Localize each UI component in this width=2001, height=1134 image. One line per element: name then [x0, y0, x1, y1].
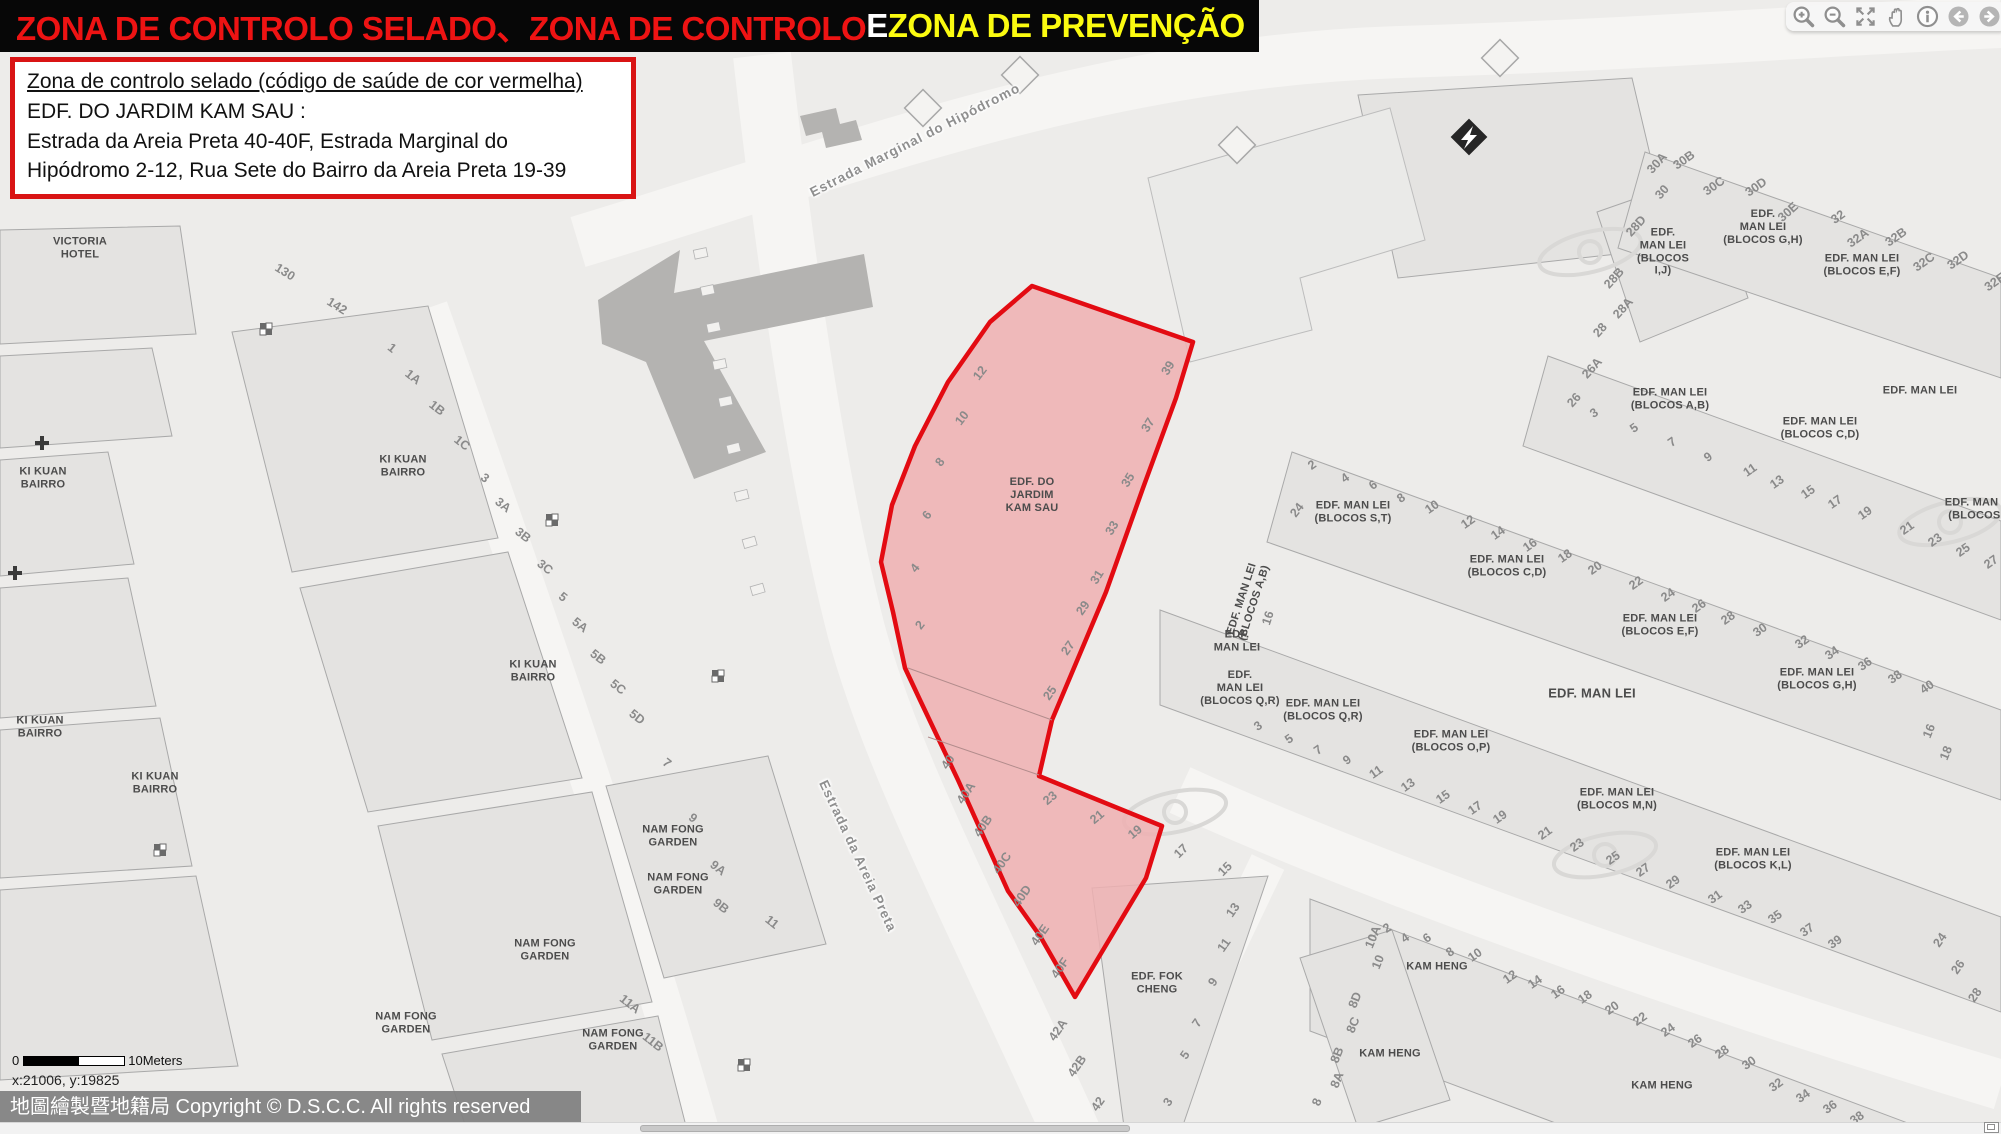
- info-line-1: Zona de controlo selado (código de saúde…: [27, 67, 619, 97]
- cursor-coordinates: x:21006, y:19825: [12, 1072, 119, 1088]
- scrollbar-corner-icon[interactable]: [1984, 1122, 1999, 1133]
- title-bar: ZONA DE CONTROLO SELADO、ZONA DE CONTROLO…: [0, 0, 1259, 52]
- info-line-4: Hipódromo 2-12, Rua Sete do Bairro da Ar…: [27, 156, 619, 186]
- scrollbar-thumb[interactable]: [640, 1125, 1130, 1132]
- info-line-3: Estrada da Areia Preta 40-40F, Estrada M…: [27, 127, 619, 157]
- copyright-bar: 地圖繪製暨地籍局 Copyright © D.S.C.C. All rights…: [0, 1091, 581, 1124]
- title-segment-1: ZONA DE CONTROLO SELADO、ZONA DE CONTROLO: [16, 2, 866, 50]
- next-extent-icon[interactable]: [1977, 4, 2001, 29]
- map-viewer-screen: VICTORIA HOTELKI KUAN BAIRROKI KUAN BAIR…: [0, 0, 2001, 1134]
- full-extent-icon[interactable]: [1853, 4, 1878, 29]
- previous-extent-icon[interactable]: [1946, 4, 1971, 29]
- zoom-in-icon[interactable]: [1791, 4, 1816, 29]
- scale-bar-graphic: [23, 1056, 125, 1066]
- zone-info-box: Zona de controlo selado (código de saúde…: [10, 57, 636, 199]
- scale-end-label: 10Meters: [128, 1053, 182, 1068]
- title-segment-2: E: [866, 7, 888, 45]
- title-segment-3: ZONA DE PREVENÇÃO: [888, 7, 1245, 45]
- zoom-out-icon[interactable]: [1822, 4, 1847, 29]
- scale-start-label: 0: [12, 1053, 19, 1068]
- map-toolbar: [1786, 2, 2001, 31]
- scale-bar: 0 10Meters: [12, 1053, 182, 1068]
- identify-icon[interactable]: [1915, 4, 1940, 29]
- horizontal-scrollbar[interactable]: [0, 1122, 2001, 1134]
- pan-icon[interactable]: [1884, 4, 1909, 29]
- info-line-2: EDF. DO JARDIM KAM SAU :: [27, 97, 619, 127]
